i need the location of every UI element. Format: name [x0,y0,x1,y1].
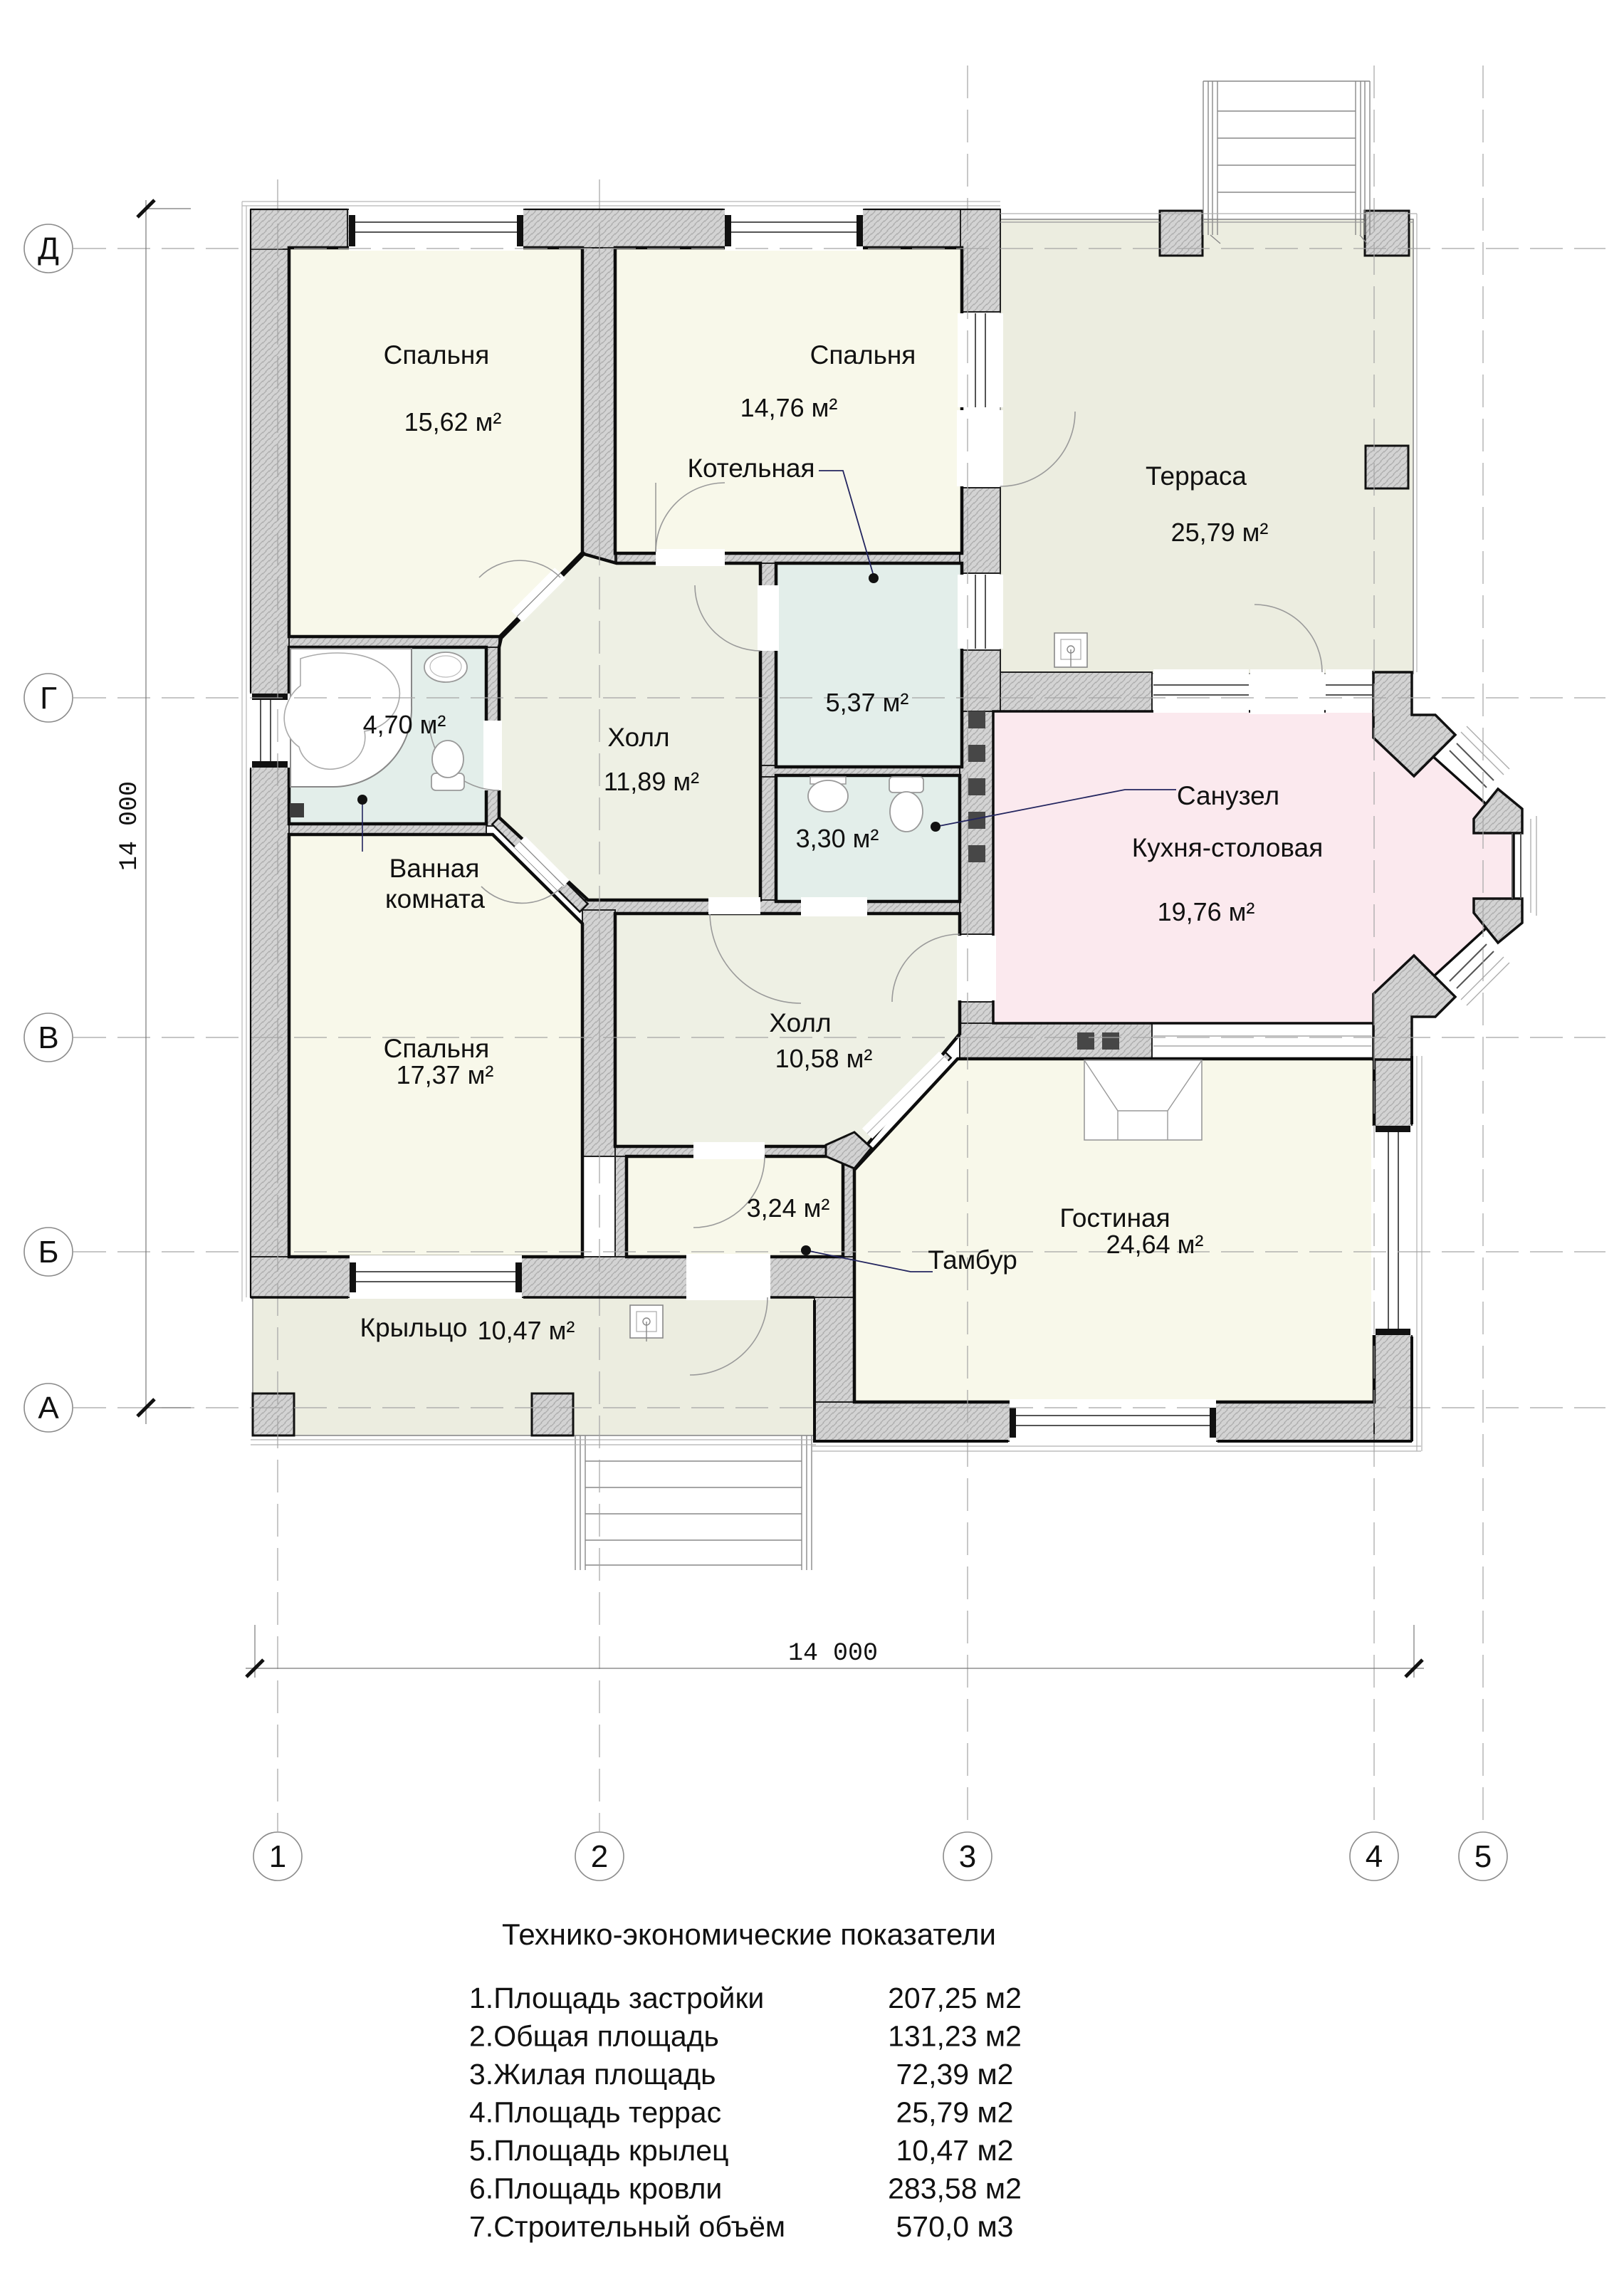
svg-text:Д: Д [38,231,59,266]
svg-text:Гостиная: Гостиная [1059,1203,1170,1233]
svg-text:комната: комната [385,884,485,914]
svg-text:3.Жилая площадь: 3.Жилая площадь [469,2058,716,2091]
svg-text:2.Общая площадь: 2.Общая площадь [469,2020,719,2053]
svg-text:5,37 м²: 5,37 м² [826,688,909,717]
svg-text:10,58 м²: 10,58 м² [775,1044,873,1073]
svg-text:Ванная: Ванная [389,854,480,883]
svg-text:Спальня: Спальня [810,340,916,370]
svg-text:Спальня: Спальня [384,340,490,370]
svg-text:4: 4 [1366,1839,1383,1874]
svg-text:24,64 м²: 24,64 м² [1106,1230,1204,1259]
svg-text:Кухня-столовая: Кухня-столовая [1132,833,1324,862]
svg-text:Б: Б [38,1235,59,1270]
svg-text:1: 1 [269,1839,286,1874]
svg-text:207,25 м2: 207,25 м2 [888,1982,1022,2014]
svg-text:283,58 м2: 283,58 м2 [888,2172,1022,2205]
svg-text:3,24 м²: 3,24 м² [747,1193,830,1223]
svg-text:15,62 м²: 15,62 м² [404,407,502,436]
svg-text:14 000: 14 000 [788,1639,878,1668]
svg-text:11,89 м²: 11,89 м² [604,767,699,796]
svg-text:25,79 м2: 25,79 м2 [896,2096,1014,2129]
svg-text:А: А [38,1391,59,1426]
svg-text:4,70 м²: 4,70 м² [363,710,446,739]
svg-text:19,76 м²: 19,76 м² [1158,897,1255,926]
svg-text:5.Площадь крылец: 5.Площадь крылец [469,2134,728,2167]
svg-text:Холл: Холл [769,1008,831,1037]
svg-text:14 000: 14 000 [115,781,144,871]
svg-text:4.Площадь террас: 4.Площадь террас [469,2096,721,2129]
svg-text:Холл: Холл [607,723,669,752]
svg-text:17,37 м²: 17,37 м² [397,1060,494,1089]
svg-text:Г: Г [40,681,57,716]
svg-text:Крыльцо: Крыльцо [360,1313,468,1342]
svg-text:1.Площадь застройки: 1.Площадь застройки [469,1982,764,2014]
svg-text:2: 2 [591,1839,608,1874]
svg-text:14,76 м²: 14,76 м² [740,393,838,422]
svg-text:Спальня: Спальня [384,1034,490,1063]
svg-text:72,39 м2: 72,39 м2 [896,2058,1014,2091]
svg-text:131,23 м2: 131,23 м2 [888,2020,1022,2053]
svg-text:5: 5 [1474,1839,1492,1874]
svg-text:7.Строительный объём: 7.Строительный объём [469,2210,785,2243]
svg-text:3,30 м²: 3,30 м² [796,824,879,853]
svg-text:10,47 м2: 10,47 м2 [896,2134,1014,2167]
svg-text:Тамбур: Тамбур [928,1245,1017,1275]
svg-text:3: 3 [959,1839,976,1874]
svg-text:25,79 м²: 25,79 м² [1171,518,1269,547]
svg-text:В: В [38,1020,58,1055]
svg-text:Терраса: Терраса [1146,461,1247,491]
svg-text:570,0 м3: 570,0 м3 [896,2210,1014,2243]
svg-text:Технико-экономические показате: Технико-экономические показатели [502,1918,996,1951]
svg-text:Котельная: Котельная [687,454,814,483]
svg-text:6.Площадь кровли: 6.Площадь кровли [469,2172,722,2205]
svg-text:Санузел: Санузел [1177,781,1279,810]
svg-text:10,47 м²: 10,47 м² [478,1316,575,1345]
